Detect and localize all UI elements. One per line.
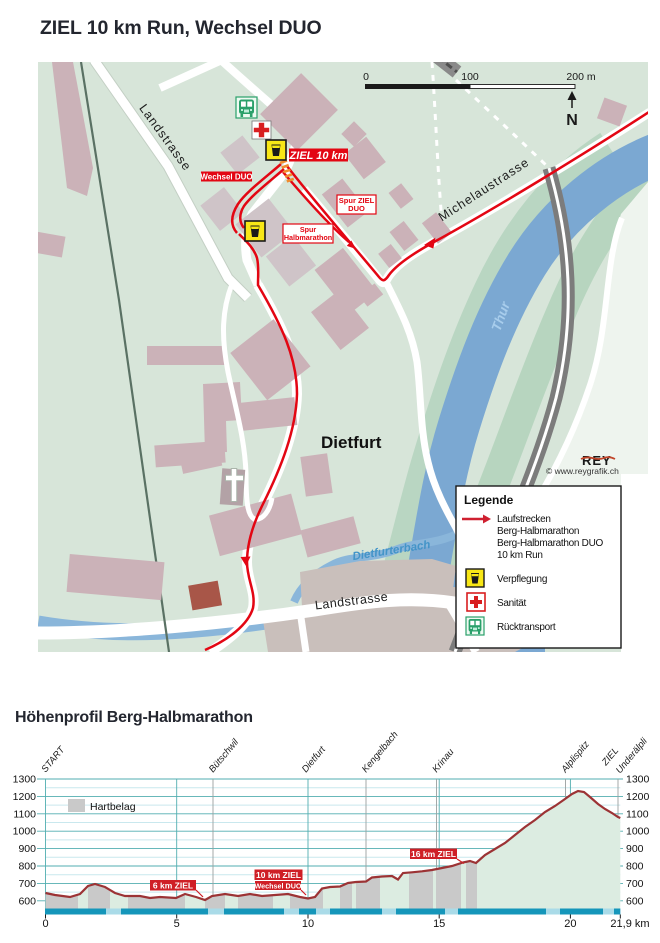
svg-text:0: 0 [42, 918, 48, 930]
svg-text:1300: 1300 [626, 774, 650, 786]
svg-text:1000: 1000 [13, 826, 37, 838]
svg-text:1300: 1300 [13, 774, 37, 786]
svg-text:10: 10 [302, 918, 314, 930]
svg-text:DUO: DUO [348, 204, 365, 213]
svg-text:Verpflegung: Verpflegung [497, 574, 547, 585]
svg-text:100: 100 [461, 71, 479, 83]
svg-text:Legende: Legende [464, 493, 514, 507]
svg-text:1100: 1100 [13, 808, 36, 820]
svg-text:ZIEL 10 km Run, Wechsel DUO: ZIEL 10 km Run, Wechsel DUO [40, 17, 322, 39]
svg-text:Wechsel DUO: Wechsel DUO [255, 882, 302, 891]
svg-text:800: 800 [18, 861, 36, 873]
svg-text:Berg-Halbmarathon DUO: Berg-Halbmarathon DUO [497, 538, 603, 549]
svg-text:© www.reygrafik.ch: © www.reygrafik.ch [546, 466, 619, 476]
svg-text:Kengelbach: Kengelbach [360, 729, 401, 775]
svg-text:Dietfurt: Dietfurt [300, 744, 328, 775]
svg-text:N: N [566, 112, 578, 129]
svg-text:Alplispitz: Alplispitz [559, 739, 592, 776]
svg-text:Halbmarathon: Halbmarathon [284, 233, 332, 242]
svg-text:ZIEL 10 km: ZIEL 10 km [289, 150, 348, 162]
svg-text:1100: 1100 [626, 808, 649, 820]
svg-text:21,9 km: 21,9 km [610, 918, 649, 930]
svg-text:700: 700 [18, 878, 36, 890]
svg-text:900: 900 [18, 843, 36, 855]
svg-text:Laufstrecken: Laufstrecken [497, 514, 551, 525]
svg-text:Bütschwil: Bütschwil [207, 736, 242, 774]
svg-text:Underälpli: Underälpli [614, 735, 650, 776]
svg-text:10 km ZIEL: 10 km ZIEL [256, 870, 301, 880]
svg-text:10 km Run: 10 km Run [497, 550, 543, 561]
svg-text:Sanität: Sanität [497, 598, 527, 609]
svg-text:800: 800 [626, 861, 644, 873]
svg-text:6 km ZIEL: 6 km ZIEL [153, 881, 193, 891]
svg-text:700: 700 [626, 878, 644, 890]
svg-text:Krinau: Krinau [430, 746, 457, 775]
svg-text:Wechsel DUO: Wechsel DUO [200, 173, 252, 182]
svg-text:15: 15 [433, 918, 445, 930]
svg-text:Rücktransport: Rücktransport [497, 622, 556, 633]
svg-text:5: 5 [174, 918, 180, 930]
svg-text:1000: 1000 [626, 826, 650, 838]
svg-text:1200: 1200 [13, 791, 37, 803]
svg-text:Höhenprofil Berg-Halbmarathon: Höhenprofil Berg-Halbmarathon [15, 709, 253, 726]
svg-text:16 km ZIEL: 16 km ZIEL [411, 849, 456, 859]
svg-text:0: 0 [363, 71, 369, 83]
svg-text:Dietfurt: Dietfurt [321, 433, 382, 452]
svg-text:Berg-Halbmarathon: Berg-Halbmarathon [497, 526, 579, 537]
svg-text:600: 600 [626, 895, 644, 907]
svg-text:1200: 1200 [626, 791, 650, 803]
svg-text:START: START [39, 744, 68, 775]
svg-text:600: 600 [18, 895, 36, 907]
svg-text:200 m: 200 m [566, 71, 595, 83]
svg-text:Hartbelag: Hartbelag [90, 801, 136, 813]
svg-text:900: 900 [626, 843, 644, 855]
svg-text:20: 20 [564, 918, 576, 930]
